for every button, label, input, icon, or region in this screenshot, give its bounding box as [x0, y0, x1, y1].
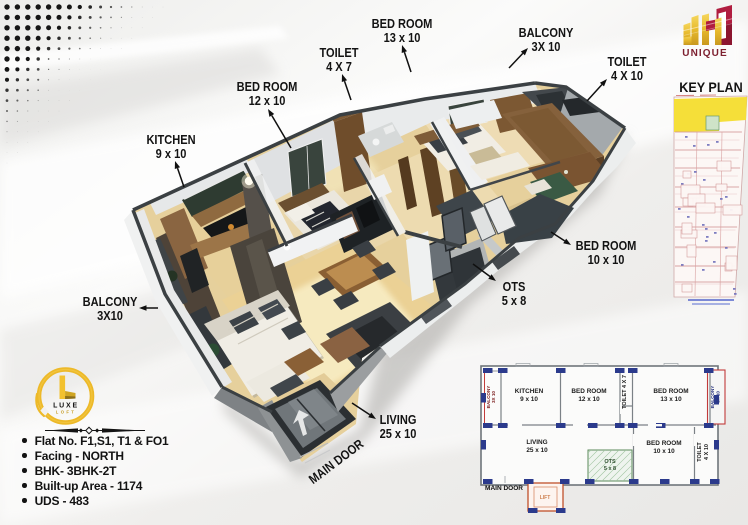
svg-text:KITCHEN: KITCHEN	[515, 388, 544, 395]
svg-text:13 x 10: 13 x 10	[660, 396, 682, 403]
svg-text:LOFT: LOFT	[56, 410, 77, 415]
svg-text:10 x 10: 10 x 10	[653, 448, 675, 455]
svg-text:3X 10: 3X 10	[491, 391, 496, 403]
svg-text:5 x 8: 5 x 8	[604, 466, 616, 472]
svg-text:9 x 10: 9 x 10	[520, 396, 538, 403]
svg-text:BALCONY: BALCONY	[710, 386, 715, 409]
svg-text:TOILET 4 X 7: TOILET 4 X 7	[622, 375, 628, 409]
svg-text:MAIN DOOR: MAIN DOOR	[485, 485, 523, 492]
svg-text:3X 10: 3X 10	[716, 391, 721, 403]
svg-text:LUXE: LUXE	[53, 403, 79, 410]
svg-text:BED ROOM: BED ROOM	[571, 388, 606, 395]
svg-text:25 x 10: 25 x 10	[526, 447, 548, 454]
svg-text:LIVING: LIVING	[526, 439, 547, 446]
svg-text:BED ROOM: BED ROOM	[653, 388, 688, 395]
svg-text:TOILET: TOILET	[697, 442, 703, 462]
svg-text:OTS: OTS	[604, 459, 616, 465]
svg-text:4 X 10: 4 X 10	[704, 444, 710, 460]
svg-text:12 x 10: 12 x 10	[578, 396, 600, 403]
svg-text:LIFT: LIFT	[540, 495, 551, 501]
svg-text:BED ROOM: BED ROOM	[646, 440, 681, 447]
